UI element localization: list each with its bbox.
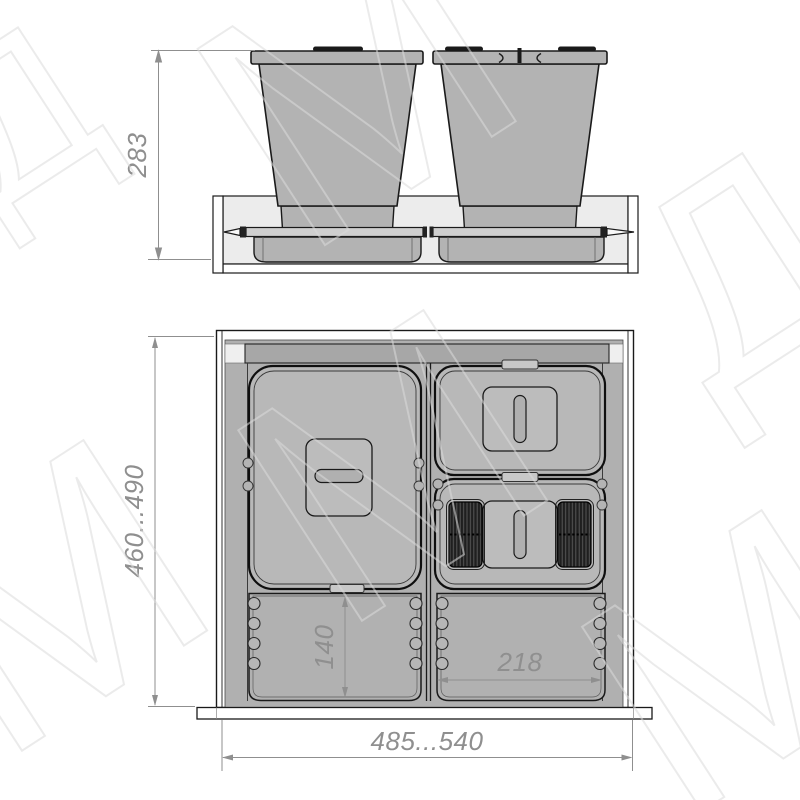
mounting-hole xyxy=(248,658,260,670)
arrowhead-left xyxy=(222,755,233,761)
mounting-hole xyxy=(594,638,606,650)
mounting-hole xyxy=(248,598,260,610)
hinge-bump xyxy=(243,458,253,468)
mounting-hole xyxy=(594,618,606,630)
right-top-lid-handle-slot xyxy=(514,396,526,443)
dimension-label-tray-depth: 140 xyxy=(309,625,339,670)
mounting-hole xyxy=(248,638,260,650)
front-strip xyxy=(197,708,652,720)
hinge-bump xyxy=(597,500,607,510)
dimension-label-width: 485...540 xyxy=(371,726,484,756)
base-bottom-panel xyxy=(223,264,628,273)
right-bottom-lid-tab xyxy=(502,473,538,482)
right-bin-lid-handle-left xyxy=(445,47,483,52)
left-tray-front xyxy=(254,237,421,262)
mounting-hole xyxy=(436,638,448,650)
arrowhead-right xyxy=(622,755,633,761)
right-top-lid-tab xyxy=(502,360,538,369)
right-bottom-bin-lid-plan xyxy=(435,473,605,590)
rail-connector xyxy=(240,227,246,238)
back-rail-band xyxy=(245,344,609,363)
mounting-hole xyxy=(436,598,448,610)
right-tray-front xyxy=(439,237,604,262)
right-bin-body xyxy=(441,64,599,206)
arrowhead-down xyxy=(156,248,162,259)
mounting-hole xyxy=(248,618,260,630)
right-bottom-lid-handle-slot xyxy=(514,511,526,559)
front-view: 283 xyxy=(122,47,638,274)
hinge-bump xyxy=(414,458,424,468)
base-left-wall xyxy=(213,196,223,273)
dimension-cabinet-width: 485...540 xyxy=(222,720,633,771)
hinge-bump xyxy=(597,479,607,489)
arrowhead-down xyxy=(152,695,158,706)
mounting-hole xyxy=(410,598,422,610)
mounting-hole xyxy=(410,638,422,650)
rail-bar-right xyxy=(433,228,601,237)
arrowhead-up xyxy=(152,337,158,348)
band-end-left xyxy=(225,344,245,363)
dimension-label-depth: 460...490 xyxy=(119,464,149,577)
mounting-hole xyxy=(436,658,448,670)
mounting-hole xyxy=(410,658,422,670)
mounting-hole xyxy=(410,618,422,630)
mounting-hole xyxy=(594,598,606,610)
rail-bar-left xyxy=(246,228,423,237)
hinge-bump xyxy=(243,481,253,491)
mounting-hole xyxy=(436,618,448,630)
left-bin-body xyxy=(259,64,416,206)
dimension-label-tray-width: 218 xyxy=(497,647,543,677)
dimension-cabinet-depth: 460...490 xyxy=(119,337,214,707)
right-top-bin-lid-plan xyxy=(435,360,605,475)
rail-connector xyxy=(430,227,434,238)
technical-drawing-page: 283 xyxy=(0,0,800,800)
base-right-wall xyxy=(628,196,638,273)
large-lid-handle-slot xyxy=(315,470,363,483)
right-bin-lid-handle-right xyxy=(558,47,596,52)
plan-view: 140 218 460...490 485...540 xyxy=(119,331,652,772)
left-bin-lid-handle xyxy=(313,47,363,52)
large-lid-tab xyxy=(330,585,364,593)
hinge-bump xyxy=(414,481,424,491)
waste-bin-technical-drawing: 283 xyxy=(0,0,800,800)
hinge-bump xyxy=(433,500,443,510)
front-panel-strip xyxy=(197,708,652,720)
mounting-hole xyxy=(594,658,606,670)
hinge-bump xyxy=(433,479,443,489)
band-end-right xyxy=(609,344,623,363)
dimension-label-height: 283 xyxy=(122,133,152,179)
rail-connector xyxy=(601,227,607,238)
arrowhead-up xyxy=(156,51,162,62)
large-bin-lid-plan xyxy=(249,366,421,593)
left-bin-lid xyxy=(251,51,423,64)
right-bin-lid-hinge-pin xyxy=(518,48,522,63)
rail-connector xyxy=(423,227,427,238)
